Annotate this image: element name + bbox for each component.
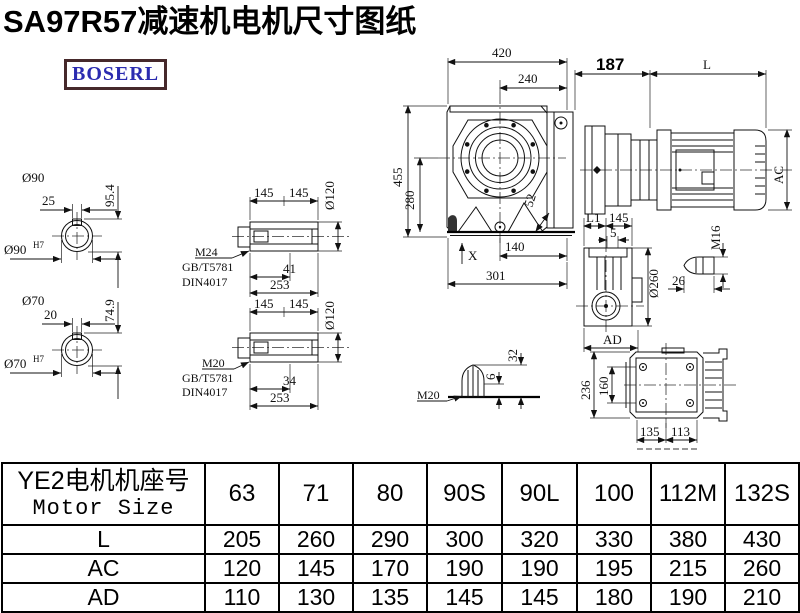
dim-tolerance: H7 bbox=[33, 354, 44, 364]
dim-label: 253 bbox=[270, 390, 290, 405]
dim-value-cell: 300 bbox=[427, 525, 502, 554]
standard-label: GB/T5781 bbox=[182, 260, 233, 274]
view-hollow-shaft-top: 145 145 Ø120 M24 GB/T5781 DIN4017 41 253 bbox=[182, 181, 352, 297]
standard-label: DIN4017 bbox=[182, 385, 227, 399]
brand-logo: BOSERL bbox=[64, 59, 167, 90]
dim-label: 32 bbox=[505, 349, 520, 362]
view-motor-side: 187 L AC bbox=[575, 55, 795, 214]
dim-label: Ø260 bbox=[646, 269, 661, 298]
dim-value-cell: 290 bbox=[353, 525, 427, 554]
dim-label: Ø120 bbox=[322, 181, 337, 210]
standard-label: DIN4017 bbox=[182, 275, 227, 289]
dim-label: 187 bbox=[596, 55, 624, 74]
dim-value-cell: 330 bbox=[577, 525, 651, 554]
dim-label: 145 bbox=[254, 296, 274, 311]
dim-label: 74.9 bbox=[102, 299, 117, 322]
view-plug-m20: 6 32 M20 bbox=[417, 349, 540, 409]
dim-row-label: AC bbox=[2, 554, 205, 583]
dim-label: Ø70 bbox=[22, 293, 44, 308]
dim-label: 41 bbox=[283, 261, 296, 276]
dim-label: 455 bbox=[390, 168, 405, 188]
dim-value-cell: 260 bbox=[725, 554, 799, 583]
dim-value-cell: 180 bbox=[577, 583, 651, 612]
header-en: Motor Size bbox=[3, 496, 204, 522]
table-row-L: L 205 260 290 300 320 330 380 430 bbox=[2, 525, 799, 554]
view-shaft-top: Ø90 25 95.4 Ø90 H7 bbox=[4, 170, 122, 288]
dim-label: 140 bbox=[505, 239, 525, 254]
header-cn: YE2电机机座号 bbox=[3, 466, 204, 496]
dim-value-cell: 135 bbox=[353, 583, 427, 612]
thread-label: M24 bbox=[195, 245, 218, 259]
dim-label: 52 bbox=[521, 192, 539, 209]
table-row-AD: AD 110 130 135 145 145 180 190 210 bbox=[2, 583, 799, 612]
size-col-header: 112M bbox=[651, 463, 725, 525]
dim-label: 95.4 bbox=[102, 184, 117, 207]
dim-label: Ø90 bbox=[22, 170, 44, 185]
motor-size-table: YE2电机机座号 Motor Size 63 71 80 90S 90L 100… bbox=[1, 462, 800, 613]
dim-label: 420 bbox=[492, 45, 512, 60]
dim-tolerance: H7 bbox=[33, 240, 44, 250]
dim-label: AC bbox=[771, 166, 786, 184]
size-col-header: 71 bbox=[279, 463, 353, 525]
size-col-header: 63 bbox=[205, 463, 279, 525]
view-gearbox-rear: 236 160 135 113 bbox=[578, 343, 736, 449]
dim-label: Ø70 bbox=[4, 356, 26, 371]
dim-value-cell: 130 bbox=[279, 583, 353, 612]
size-col-header: 90S bbox=[427, 463, 502, 525]
dim-value-cell: 205 bbox=[205, 525, 279, 554]
dim-label: 26 bbox=[672, 273, 686, 288]
motor-size-header-cell: YE2电机机座号 Motor Size bbox=[2, 463, 205, 525]
thread-label: M20 bbox=[202, 356, 225, 370]
size-col-header: 90L bbox=[502, 463, 577, 525]
dim-label: 6 bbox=[483, 373, 498, 380]
thread-label: M20 bbox=[417, 388, 440, 402]
dim-label: 160 bbox=[596, 377, 611, 397]
dim-row-label: L bbox=[2, 525, 205, 554]
dim-value-cell: 260 bbox=[279, 525, 353, 554]
size-col-header: 132S bbox=[725, 463, 799, 525]
dim-label: 20 bbox=[44, 307, 57, 322]
dim-label: 135 bbox=[640, 424, 660, 439]
dim-label: 25 bbox=[42, 193, 55, 208]
thread-label: M16 bbox=[708, 225, 723, 250]
dim-value-cell: 380 bbox=[651, 525, 725, 554]
dim-label: 236 bbox=[578, 380, 593, 400]
dim-label: 145 bbox=[289, 296, 309, 311]
dim-label: 145 bbox=[289, 185, 309, 200]
drawing-page: Ø90 25 95.4 Ø90 H7 Ø70 bbox=[0, 0, 800, 613]
dim-row-label: AD bbox=[2, 583, 205, 612]
dim-value-cell: 110 bbox=[205, 583, 279, 612]
view-plug-m16: M16 26 bbox=[668, 225, 730, 293]
size-col-header: 100 bbox=[577, 463, 651, 525]
dim-value-cell: 215 bbox=[651, 554, 725, 583]
dim-label: 34 bbox=[283, 373, 297, 388]
size-col-header: 80 bbox=[353, 463, 427, 525]
dim-value-cell: 120 bbox=[205, 554, 279, 583]
dim-value-cell: 190 bbox=[502, 554, 577, 583]
dim-label: 5 bbox=[610, 225, 617, 240]
table-row-AC: AC 120 145 170 190 190 195 215 260 bbox=[2, 554, 799, 583]
dim-label: 240 bbox=[518, 71, 538, 86]
dim-value-cell: 210 bbox=[725, 583, 799, 612]
dim-label: 145 bbox=[609, 210, 629, 225]
dim-value-cell: 430 bbox=[725, 525, 799, 554]
dim-label: L bbox=[703, 57, 711, 72]
standard-label: GB/T5781 bbox=[182, 371, 233, 385]
dim-value-cell: 145 bbox=[279, 554, 353, 583]
dim-label: 280 bbox=[402, 191, 417, 211]
dim-label: 145 bbox=[254, 185, 274, 200]
dim-label: 301 bbox=[486, 268, 506, 283]
dim-label: 253 bbox=[270, 277, 290, 292]
page-title: SA97R57减速机电机尺寸图纸 bbox=[3, 0, 416, 41]
dim-label: L1 bbox=[586, 210, 600, 225]
dim-value-cell: 195 bbox=[577, 554, 651, 583]
view-gearbox-side: L1 145 5 Ø260 AD bbox=[576, 210, 661, 352]
dim-value-cell: 145 bbox=[502, 583, 577, 612]
view-hollow-shaft-bottom: 145 145 Ø120 M20 GB/T5781 DIN4017 34 253 bbox=[182, 296, 352, 410]
table-header-row: YE2电机机座号 Motor Size 63 71 80 90S 90L 100… bbox=[2, 463, 799, 525]
dim-value-cell: 170 bbox=[353, 554, 427, 583]
dim-label: AD bbox=[603, 332, 622, 347]
dim-value-cell: 190 bbox=[427, 554, 502, 583]
view-shaft-bottom: Ø70 20 74.9 Ø70 H7 bbox=[4, 293, 122, 399]
dim-value-cell: 320 bbox=[502, 525, 577, 554]
dim-label: Ø90 bbox=[4, 242, 26, 257]
dim-label: X bbox=[468, 248, 478, 263]
view-gearbox-front: 420 240 455 280 52 X 140 301 bbox=[390, 45, 575, 289]
dim-label: Ø120 bbox=[322, 301, 337, 330]
dim-value-cell: 190 bbox=[651, 583, 725, 612]
dim-label: 113 bbox=[671, 424, 690, 439]
dim-value-cell: 145 bbox=[427, 583, 502, 612]
